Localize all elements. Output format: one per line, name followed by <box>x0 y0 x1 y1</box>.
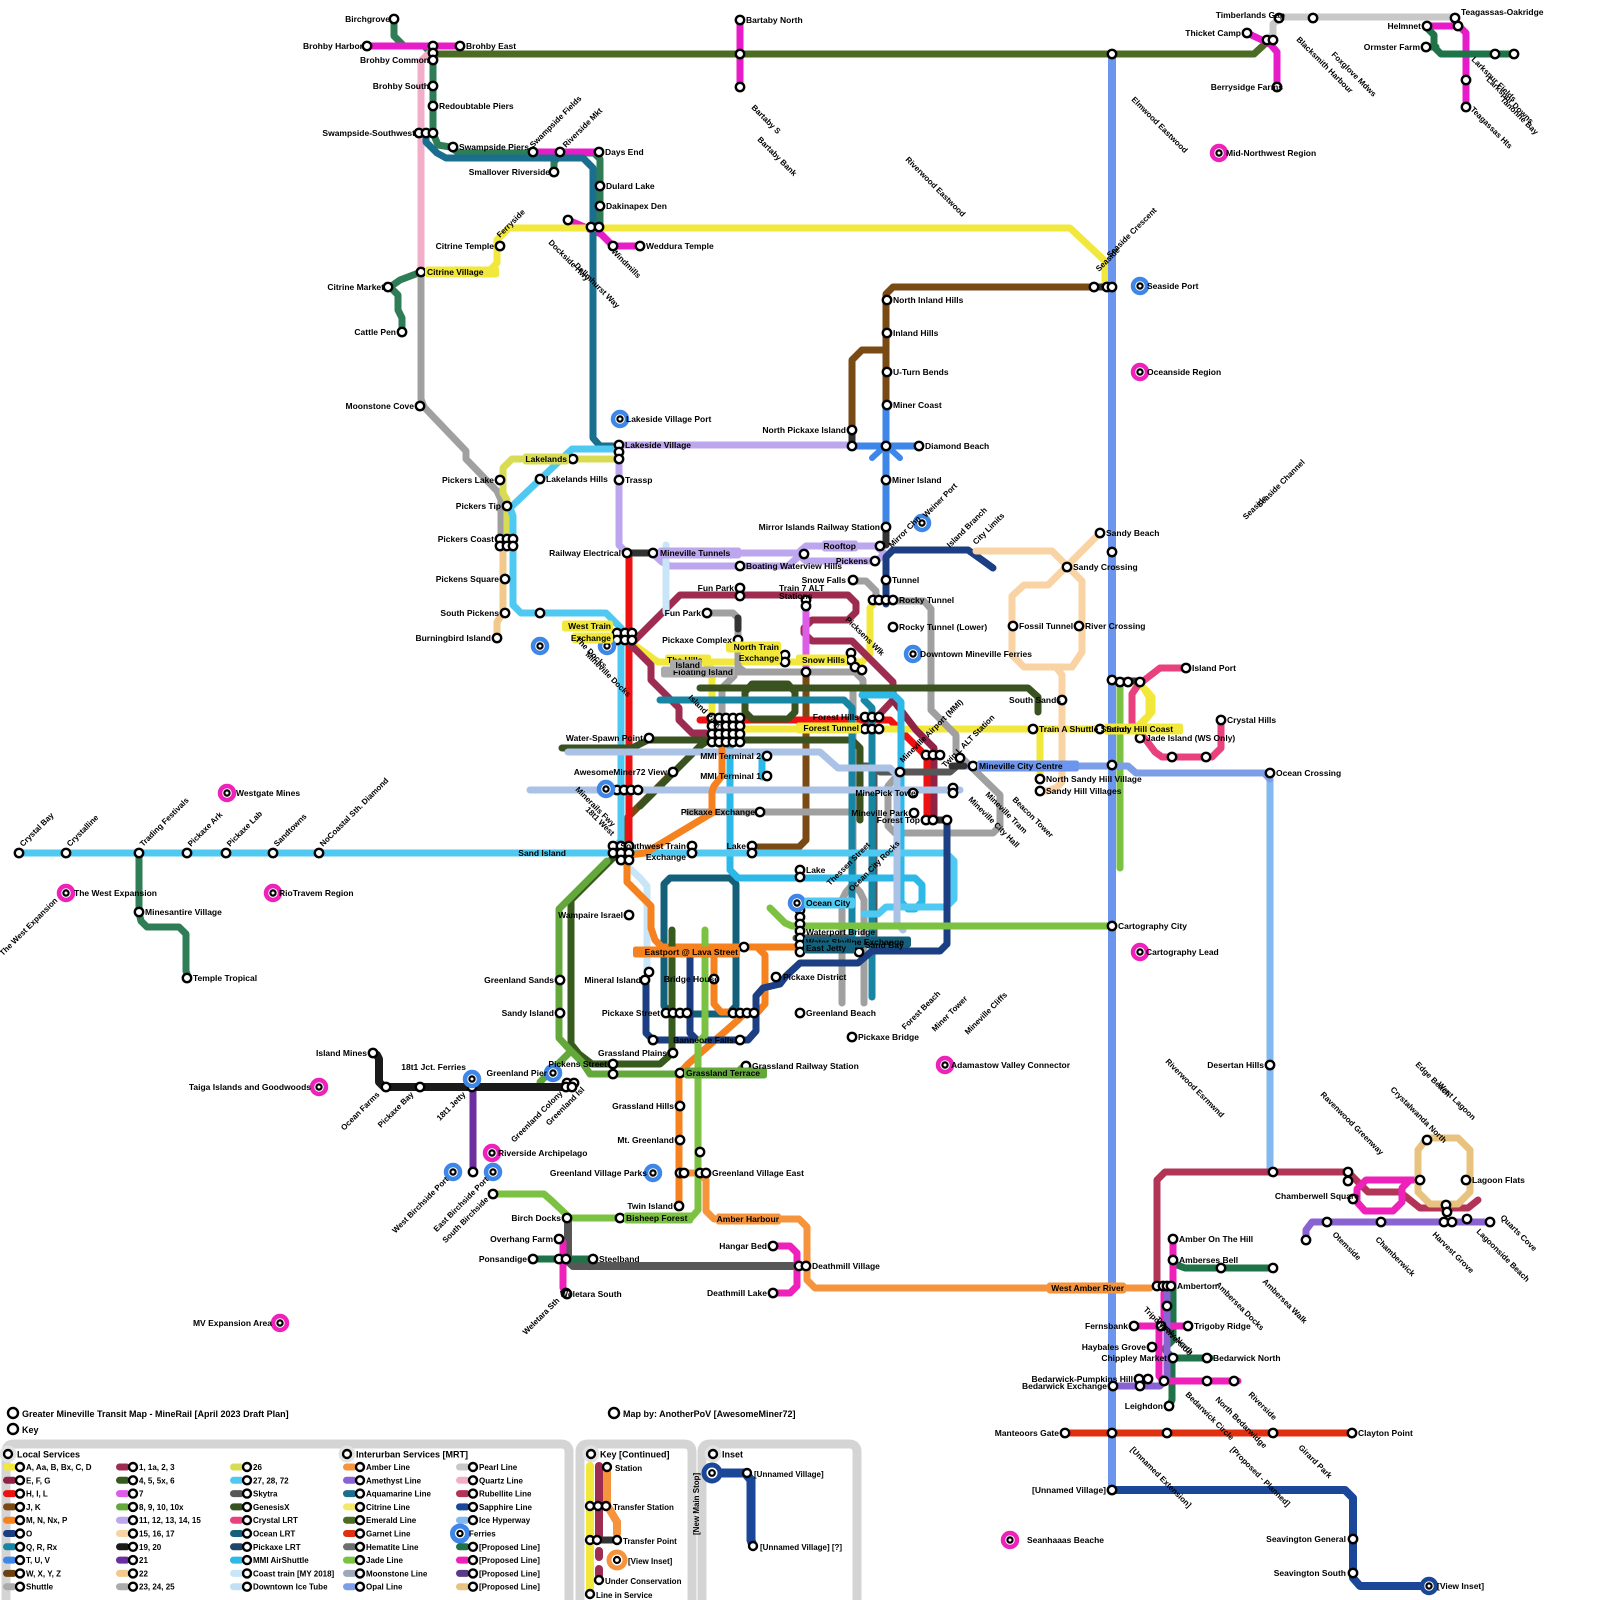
svg-text:Fun Park: Fun Park <box>665 608 702 618</box>
svg-text:Sandy Island: Sandy Island <box>502 1008 554 1018</box>
svg-text:Greenland Sands: Greenland Sands <box>484 975 554 985</box>
svg-text:North Sandy Hill Village: North Sandy Hill Village <box>1046 774 1142 784</box>
svg-text:Mirror Islands Railway Station: Mirror Islands Railway Station <box>759 522 880 532</box>
svg-text:Grassland Plains: Grassland Plains <box>598 1048 667 1058</box>
svg-text:Lakelands: Lakelands <box>525 454 567 464</box>
svg-text:Crystal LRT: Crystal LRT <box>253 1516 298 1525</box>
svg-text:Berrysidge Farms: Berrysidge Farms <box>1211 82 1284 92</box>
svg-text:Ocean City: Ocean City <box>806 898 851 908</box>
svg-text:Deathmill Lake: Deathmill Lake <box>707 1288 767 1298</box>
svg-text:Pearl Line: Pearl Line <box>479 1463 518 1472</box>
svg-text:Pickers Coast: Pickers Coast <box>438 534 494 544</box>
svg-text:Burningbird Island: Burningbird Island <box>415 633 491 643</box>
svg-text:North Train: North Train <box>734 642 779 652</box>
svg-text:Miner Coast: Miner Coast <box>893 400 942 410</box>
svg-text:[Unnamed Village]: [Unnamed Village] <box>754 1470 824 1479</box>
svg-text:AwesomeMiner72 View: AwesomeMiner72 View <box>574 767 668 777</box>
svg-text:Greenland Beach: Greenland Beach <box>806 1008 876 1018</box>
svg-text:Brohby Common: Brohby Common <box>360 55 429 65</box>
svg-text:Amber On The Hill: Amber On The Hill <box>1179 1234 1253 1244</box>
svg-text:A, Aa, B, Bx, C, D: A, Aa, B, Bx, C, D <box>26 1463 92 1472</box>
svg-text:Grassland Terrace: Grassland Terrace <box>686 1068 760 1078</box>
svg-text:Dulard Lake: Dulard Lake <box>606 181 655 191</box>
svg-text:22: 22 <box>139 1569 148 1578</box>
svg-text:Downtown Ice Tube: Downtown Ice Tube <box>253 1583 328 1592</box>
svg-text:Ocean Crossing: Ocean Crossing <box>1276 768 1341 778</box>
svg-text:Interurban Services [MRT]: Interurban Services [MRT] <box>356 1450 468 1460</box>
svg-text:Helmnet: Helmnet <box>1387 21 1421 31</box>
svg-text:Bisheep Forest: Bisheep Forest <box>626 1213 688 1223</box>
svg-text:[Proposed Line]: [Proposed Line] <box>479 1556 540 1565</box>
svg-text:Lakeside Village: Lakeside Village <box>625 440 691 450</box>
svg-text:Seanhaaas Beache: Seanhaaas Beache <box>1027 1535 1104 1545</box>
svg-text:Station: Station <box>615 1464 642 1473</box>
svg-text:4, 5, 5x, 6: 4, 5, 5x, 6 <box>139 1476 175 1485</box>
svg-text:Coast train [MY 2018]: Coast train [MY 2018] <box>253 1569 335 1578</box>
svg-text:O: O <box>26 1530 32 1539</box>
svg-text:Moonstone Cove: Moonstone Cove <box>346 401 415 411</box>
svg-text:Southwest Train: Southwest Train <box>620 841 686 851</box>
svg-text:[Unnamed Village]: [Unnamed Village] <box>1032 1485 1106 1495</box>
svg-text:Key [Continued]: Key [Continued] <box>600 1450 670 1460</box>
svg-text:Under Conservation: Under Conservation <box>605 1577 682 1586</box>
svg-text:Pickaxe LRT: Pickaxe LRT <box>253 1543 301 1552</box>
svg-text:Railway Electrical: Railway Electrical <box>549 548 621 558</box>
svg-text:T, U, V: T, U, V <box>26 1556 51 1565</box>
svg-text:19, 20: 19, 20 <box>139 1543 162 1552</box>
svg-text:Seavington General: Seavington General <box>1266 1534 1346 1544</box>
svg-text:Fossil Tunnel: Fossil Tunnel <box>1019 621 1073 631</box>
svg-text:Birchgrove: Birchgrove <box>345 14 390 24</box>
svg-text:Steelband: Steelband <box>599 1254 640 1264</box>
svg-text:Citrine Line: Citrine Line <box>366 1503 411 1512</box>
svg-text:Teagassas-Oakridge: Teagassas-Oakridge <box>1461 7 1544 17</box>
svg-text:Water-Spawn Point: Water-Spawn Point <box>566 733 643 743</box>
svg-text:Pickaxe Street: Pickaxe Street <box>602 1008 660 1018</box>
svg-text:Swampside-Southwest: Swampside-Southwest <box>322 128 415 138</box>
svg-text:Desertan Hills: Desertan Hills <box>1207 1060 1264 1070</box>
svg-text:Twin Island: Twin Island <box>627 1201 673 1211</box>
svg-text:11, 12, 13, 14, 15: 11, 12, 13, 14, 15 <box>139 1516 201 1525</box>
svg-text:Sandy Crossing: Sandy Crossing <box>1073 562 1138 572</box>
svg-text:Bridge House: Bridge House <box>664 974 720 984</box>
svg-text:East Jetty: East Jetty <box>806 943 846 953</box>
svg-text:Lakelands Hills: Lakelands Hills <box>546 474 608 484</box>
svg-text:MMI Terminal 2: MMI Terminal 2 <box>700 751 761 761</box>
svg-text:[Proposed Line]: [Proposed Line] <box>479 1569 540 1578</box>
svg-text:26: 26 <box>253 1463 262 1472</box>
svg-text:[Proposed Line]: [Proposed Line] <box>479 1583 540 1592</box>
svg-text:Amber Line: Amber Line <box>366 1463 411 1472</box>
svg-text:Citrine Market: Citrine Market <box>327 282 384 292</box>
svg-text:Forest Top: Forest Top <box>877 815 920 825</box>
svg-text:Hematite Line: Hematite Line <box>366 1543 419 1552</box>
svg-text:Quartz Line: Quartz Line <box>479 1476 524 1485</box>
svg-text:Forest Tunnel: Forest Tunnel <box>803 723 859 733</box>
svg-text:Sand Island: Sand Island <box>518 848 566 858</box>
svg-text:Island Mines: Island Mines <box>316 1048 367 1058</box>
svg-text:23, 24, 25: 23, 24, 25 <box>139 1583 175 1592</box>
svg-text:Deathmill Village: Deathmill Village <box>812 1261 880 1271</box>
svg-text:E, F, G: E, F, G <box>26 1476 50 1485</box>
svg-text:Inset: Inset <box>722 1450 743 1460</box>
svg-text:MV Expansion Area: MV Expansion Area <box>193 1318 272 1328</box>
svg-text:Train A Shuttle Station: Train A Shuttle Station <box>1039 724 1130 734</box>
svg-text:West Train: West Train <box>568 621 611 631</box>
svg-text:Pickaxe Bridge: Pickaxe Bridge <box>858 1032 919 1042</box>
svg-text:J, K: J, K <box>26 1503 41 1512</box>
svg-text:Map by: AnotherPoV [AwesomeMin: Map by: AnotherPoV [AwesomeMiner72] <box>623 1409 796 1419</box>
svg-text:Pickens Square: Pickens Square <box>436 574 500 584</box>
svg-text:Fernsbank: Fernsbank <box>1085 1321 1128 1331</box>
svg-text:Thicket Camp: Thicket Camp <box>1185 28 1241 38</box>
svg-text:North Pickaxe Island: North Pickaxe Island <box>762 425 846 435</box>
svg-text:M, N, Nx, P: M, N, Nx, P <box>26 1516 68 1525</box>
svg-text:Banneore Falls: Banneore Falls <box>673 1035 734 1045</box>
svg-text:U-Turn Bends: U-Turn Bends <box>893 367 949 377</box>
svg-text:Haybales Grove: Haybales Grove <box>1082 1342 1147 1352</box>
svg-text:North Inland Hills: North Inland Hills <box>893 295 964 305</box>
svg-text:Sapphire Line: Sapphire Line <box>479 1503 532 1512</box>
svg-text:Birch Docks: Birch Docks <box>511 1213 561 1223</box>
svg-text:Shuttle: Shuttle <box>26 1583 54 1592</box>
svg-text:[View Inset]: [View Inset] <box>1437 1581 1484 1591</box>
svg-text:Westgate Mines: Westgate Mines <box>236 788 300 798</box>
svg-text:1, 1a, 2, 3: 1, 1a, 2, 3 <box>139 1463 175 1472</box>
svg-text:Boating Waterview Hills: Boating Waterview Hills <box>746 561 842 571</box>
svg-text:Jade Island (WS Only): Jade Island (WS Only) <box>1146 733 1235 743</box>
svg-text:Cattle Pen: Cattle Pen <box>354 327 396 337</box>
svg-text:Riverside Archipelago: Riverside Archipelago <box>498 1148 587 1158</box>
svg-text:Cartography Lead: Cartography Lead <box>1146 947 1219 957</box>
svg-text:7: 7 <box>139 1490 144 1499</box>
svg-text:Island: Island <box>675 660 700 670</box>
svg-text:Pickaxe Exchange: Pickaxe Exchange <box>681 807 755 817</box>
svg-text:15, 16, 17: 15, 16, 17 <box>139 1530 175 1539</box>
svg-text:Days End: Days End <box>605 147 644 157</box>
svg-text:Brohby East: Brohby East <box>466 41 516 51</box>
svg-text:River Crossing: River Crossing <box>1085 621 1145 631</box>
svg-text:H, I, L: H, I, L <box>26 1490 48 1499</box>
svg-text:Trassp: Trassp <box>625 475 652 485</box>
svg-text:Island Port: Island Port <box>1192 663 1236 673</box>
svg-text:Waterport Bridge: Waterport Bridge <box>806 927 875 937</box>
svg-text:Greenland Village Parks: Greenland Village Parks <box>550 1168 647 1178</box>
svg-text:Manteoors Gate: Manteoors Gate <box>995 1428 1060 1438</box>
svg-text:Redoubtable Piers: Redoubtable Piers <box>439 101 514 111</box>
svg-text:Mid-Northwest Region: Mid-Northwest Region <box>1226 148 1316 158</box>
svg-text:Greenland Pier: Greenland Pier <box>487 1068 548 1078</box>
svg-text:Opal Line: Opal Line <box>366 1583 403 1592</box>
svg-text:Swampside Piers: Swampside Piers <box>459 142 529 152</box>
svg-text:Mineville Tunnels: Mineville Tunnels <box>660 548 730 558</box>
svg-text:Pickers Tip: Pickers Tip <box>456 501 501 511</box>
svg-text:Bedarwick North: Bedarwick North <box>1213 1353 1281 1363</box>
svg-text:Minesantire Village: Minesantire Village <box>145 907 222 917</box>
svg-text:Mineral Island: Mineral Island <box>584 975 641 985</box>
svg-text:Trigoby Ridge: Trigoby Ridge <box>1194 1321 1251 1331</box>
svg-text:Pickens: Pickens <box>836 556 868 566</box>
svg-text:Exchange: Exchange <box>739 653 779 663</box>
svg-text:Forest Hills: Forest Hills <box>813 712 860 722</box>
svg-text:27, 28, 72: 27, 28, 72 <box>253 1476 289 1485</box>
svg-text:Amberton: Amberton <box>1177 1281 1217 1291</box>
svg-text:Garnet Line: Garnet Line <box>366 1530 411 1539</box>
svg-text:Chamberwell Square: Chamberwell Square <box>1275 1191 1359 1201</box>
svg-text:Citrine Temple: Citrine Temple <box>436 241 495 251</box>
svg-text:Ice Hyperway: Ice Hyperway <box>479 1516 531 1525</box>
svg-text:Pickens Street: Pickens Street <box>548 1059 607 1069</box>
svg-text:18t1 Jct. Ferries: 18t1 Jct. Ferries <box>401 1062 466 1072</box>
svg-text:Greater Mineville Transit Map: Greater Mineville Transit Map - MineRail… <box>22 1409 289 1419</box>
svg-text:Mineville City Centre: Mineville City Centre <box>979 761 1063 771</box>
svg-text:Amber Harbour: Amber Harbour <box>717 1214 780 1224</box>
svg-text:Timberlands Gap: Timberlands Gap <box>1216 10 1285 20</box>
svg-text:Taiga Islands and Goodwoods: Taiga Islands and Goodwoods <box>189 1082 311 1092</box>
svg-text:Downtown Mineville Ferries: Downtown Mineville Ferries <box>920 649 1032 659</box>
svg-text:Emerald Line: Emerald Line <box>366 1516 417 1525</box>
svg-text:Clayton Point: Clayton Point <box>1358 1428 1413 1438</box>
svg-text:W, X, Y, Z: W, X, Y, Z <box>26 1569 61 1578</box>
svg-text:Ponsandige: Ponsandige <box>479 1254 527 1264</box>
svg-text:RioTravem Region: RioTravem Region <box>279 888 354 898</box>
svg-text:Weddura Temple: Weddura Temple <box>646 241 714 251</box>
svg-text:Ormster Farm: Ormster Farm <box>1364 42 1421 52</box>
svg-text:Local Services: Local Services <box>17 1450 80 1460</box>
svg-text:Greenland Village East: Greenland Village East <box>712 1168 804 1178</box>
svg-text:Aquamarine Line: Aquamarine Line <box>366 1490 431 1499</box>
svg-text:Weletara South: Weletara South <box>560 1289 622 1299</box>
svg-text:Lagoon Flats: Lagoon Flats <box>1472 1175 1525 1185</box>
svg-text:Rocky Tunnel (Lower): Rocky Tunnel (Lower) <box>899 622 987 632</box>
svg-text:Temple Tropical: Temple Tropical <box>193 973 257 983</box>
svg-text:Amethyst Line: Amethyst Line <box>366 1476 422 1485</box>
svg-text:Exchange: Exchange <box>646 852 686 862</box>
svg-text:8, 9, 10, 10x: 8, 9, 10, 10x <box>139 1503 184 1512</box>
svg-text:Inland Hills: Inland Hills <box>893 328 939 338</box>
svg-text:Tunnel: Tunnel <box>892 575 919 585</box>
svg-text:Wampaire Israel: Wampaire Israel <box>558 910 623 920</box>
svg-text:Ferries: Ferries <box>469 1530 496 1539</box>
svg-text:Lake: Lake <box>806 865 826 875</box>
svg-text:Diamond Beach: Diamond Beach <box>925 441 989 451</box>
svg-text:Bartaby North: Bartaby North <box>746 15 803 25</box>
svg-text:Grassland Hills: Grassland Hills <box>612 1101 674 1111</box>
svg-text:Stations: Stations <box>779 591 813 601</box>
svg-text:Ocean LRT: Ocean LRT <box>253 1530 295 1539</box>
svg-text:Brohby Harbor: Brohby Harbor <box>303 41 364 51</box>
svg-text:Rooftop: Rooftop <box>823 541 856 551</box>
svg-text:Overhang Farm: Overhang Farm <box>490 1234 553 1244</box>
svg-text:MMI Terminal 1: MMI Terminal 1 <box>700 771 761 781</box>
svg-text:MinePick Tower: MinePick Tower <box>855 788 919 798</box>
svg-text:Eastport @ Lava Street: Eastport @ Lava Street <box>645 947 738 957</box>
svg-text:Adamastow Valley Connector: Adamastow Valley Connector <box>951 1060 1071 1070</box>
svg-text:Rubellite Line: Rubellite Line <box>479 1490 532 1499</box>
svg-text:Amberses Bell: Amberses Bell <box>1179 1255 1238 1265</box>
svg-text:The West Expansion: The West Expansion <box>74 888 157 898</box>
svg-text:Sandy Beach: Sandy Beach <box>1106 528 1159 538</box>
svg-text:Pickers Lake: Pickers Lake <box>442 475 494 485</box>
svg-text:Miner Island: Miner Island <box>892 475 942 485</box>
svg-text:Crystal Hills: Crystal Hills <box>1227 715 1276 725</box>
svg-text:Hangar Bed: Hangar Bed <box>719 1241 767 1251</box>
svg-text:South Pickens: South Pickens <box>440 608 499 618</box>
svg-text:Grassland Railway Station: Grassland Railway Station <box>752 1061 859 1071</box>
svg-text:Dakinapex Den: Dakinapex Den <box>606 201 667 211</box>
svg-text:Seavington South: Seavington South <box>1274 1568 1346 1578</box>
svg-text:Snow Hills: Snow Hills <box>802 655 845 665</box>
svg-text:Lake: Lake <box>727 841 747 851</box>
svg-text:Sand Bay: Sand Bay <box>865 940 904 950</box>
svg-text:Skytra: Skytra <box>253 1490 278 1499</box>
svg-text:Q, R, Rx: Q, R, Rx <box>26 1543 58 1552</box>
svg-text:[New Main Stop]: [New Main Stop] <box>692 1472 701 1535</box>
svg-text:Transfer Point: Transfer Point <box>623 1537 677 1546</box>
svg-text:Cartography City: Cartography City <box>1118 921 1187 931</box>
svg-text:Line in Service: Line in Service <box>596 1591 653 1600</box>
svg-text:Citrine Village: Citrine Village <box>427 267 484 277</box>
svg-text:Bedarwick Exchange: Bedarwick Exchange <box>1022 1381 1107 1391</box>
svg-text:Moonstone Line: Moonstone Line <box>366 1569 428 1578</box>
svg-text:GenesisX: GenesisX <box>253 1503 290 1512</box>
svg-text:[View Inset]: [View Inset] <box>628 1557 673 1566</box>
svg-text:Smallover Riverside: Smallover Riverside <box>469 167 551 177</box>
svg-text:Mt. Greenland: Mt. Greenland <box>617 1135 674 1145</box>
svg-text:Transfer Station: Transfer Station <box>613 1503 674 1512</box>
svg-text:Chippley Market: Chippley Market <box>1101 1353 1167 1363</box>
svg-text:[Proposed Line]: [Proposed Line] <box>479 1543 540 1552</box>
svg-text:[Unnamed Village] [?]: [Unnamed Village] [?] <box>760 1543 842 1552</box>
svg-text:South Sands: South Sands <box>1009 695 1061 705</box>
svg-text:Fun Park: Fun Park <box>698 583 735 593</box>
svg-text:Seaside Port: Seaside Port <box>1147 281 1199 291</box>
svg-text:MMI AirShuttle: MMI AirShuttle <box>253 1556 309 1565</box>
svg-text:Lakeside Village Port: Lakeside Village Port <box>626 414 712 424</box>
svg-text:Jade Line: Jade Line <box>366 1556 403 1565</box>
svg-text:21: 21 <box>139 1556 148 1565</box>
svg-text:Rocky Tunnel: Rocky Tunnel <box>899 595 954 605</box>
svg-text:Leighdon: Leighdon <box>1125 1401 1163 1411</box>
svg-text:Oceanside Region: Oceanside Region <box>1147 367 1221 377</box>
svg-text:Sandy Hill Villages: Sandy Hill Villages <box>1046 786 1122 796</box>
svg-text:Brohby South: Brohby South <box>373 81 429 91</box>
svg-text:Pickaxe District: Pickaxe District <box>783 972 846 982</box>
svg-text:Key: Key <box>22 1425 39 1435</box>
svg-text:Pickaxe Complex: Pickaxe Complex <box>662 635 732 645</box>
svg-text:West Amber River: West Amber River <box>1051 1283 1124 1293</box>
